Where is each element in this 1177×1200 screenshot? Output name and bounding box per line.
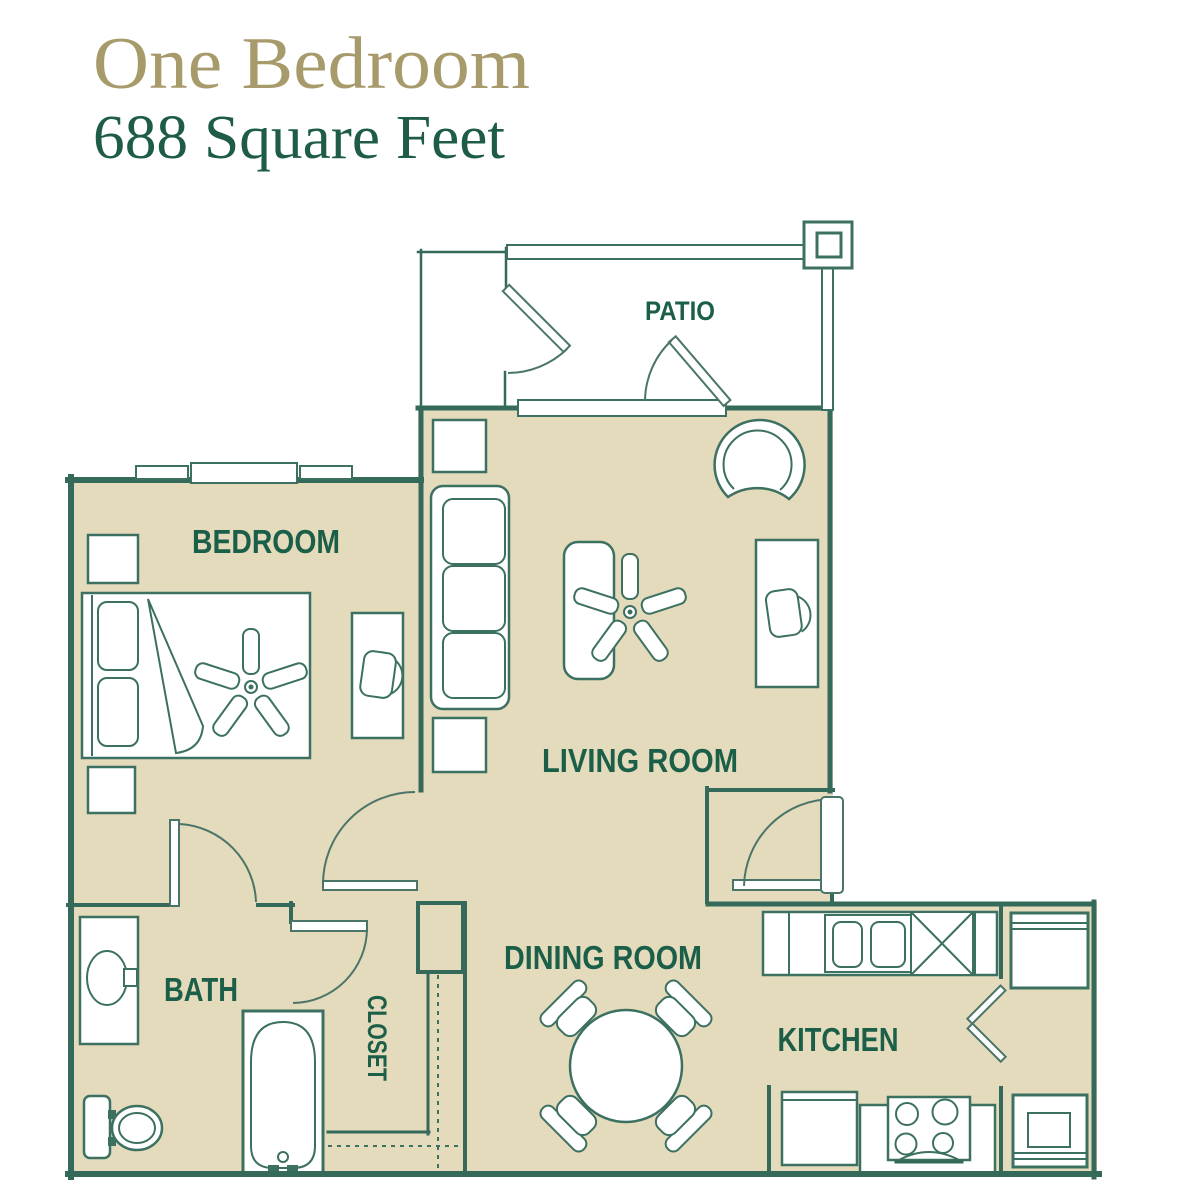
room-label-living-room: LIVING ROOM	[542, 742, 738, 779]
floor-plan-page: One Bedroom 688 Square Feet	[0, 0, 1177, 1200]
page-title: One Bedroom	[93, 23, 530, 105]
room-label-patio: PATIO	[645, 296, 715, 326]
patio-post	[804, 222, 852, 268]
vanity-sink	[80, 917, 138, 1044]
room-label-dining-room: DINING ROOM	[504, 939, 702, 976]
end-table	[433, 420, 486, 472]
washer	[1013, 1095, 1087, 1167]
nightstand	[88, 535, 138, 583]
entry-threshold	[733, 880, 831, 890]
bathtub	[243, 1011, 323, 1175]
window	[191, 463, 297, 483]
refrigerator	[1011, 913, 1088, 988]
nightstand	[88, 767, 135, 813]
floor-plan: One Bedroom 688 Square Feet	[0, 0, 1177, 1200]
window	[300, 466, 352, 479]
range-stove	[860, 1097, 995, 1175]
patio-storage-door	[503, 285, 570, 373]
room-label-kitchen: KITCHEN	[778, 1021, 899, 1058]
header: One Bedroom 688 Square Feet	[93, 23, 530, 172]
corner-chair	[715, 420, 805, 499]
kitchen-sink	[825, 915, 911, 972]
patio-railing	[822, 268, 833, 410]
patio-railing	[507, 245, 806, 259]
room-label-bedroom: BEDROOM	[192, 523, 340, 560]
pillow	[98, 678, 138, 746]
end-table	[433, 718, 486, 772]
sofa	[431, 486, 509, 709]
dishwasher	[911, 912, 973, 975]
patio-door-sill	[518, 400, 726, 416]
dining-table	[570, 1010, 682, 1122]
kitchen-counter	[782, 1092, 857, 1165]
room-label-bath: BATH	[164, 971, 238, 1008]
room-label-closet: CLOSET	[362, 995, 392, 1081]
patio-entry-door	[645, 336, 730, 406]
pillow	[98, 602, 138, 670]
page-subtitle: 688 Square Feet	[93, 104, 505, 172]
window	[136, 466, 188, 479]
